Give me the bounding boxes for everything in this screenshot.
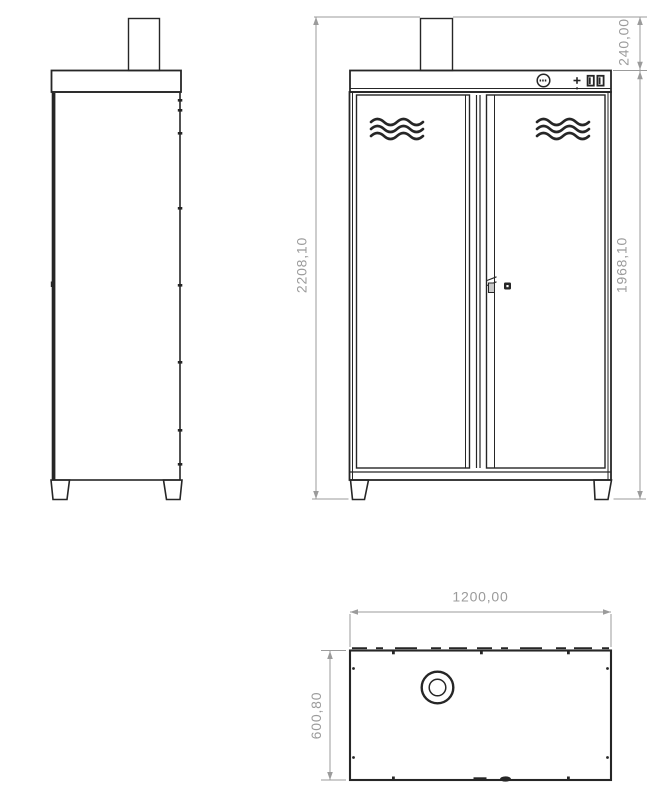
top-outline bbox=[350, 651, 611, 781]
corner-dot bbox=[352, 667, 355, 670]
tick-mark bbox=[567, 652, 570, 655]
hinge-tick bbox=[178, 463, 183, 466]
lock-icon bbox=[504, 283, 511, 290]
technical-drawing: 2208,10 1968,10 240,00 1200,00 600,80 bbox=[0, 0, 655, 800]
front-leg-right bbox=[594, 480, 612, 500]
front-leg-left bbox=[351, 480, 369, 500]
arrow-down bbox=[637, 491, 643, 499]
flue-outlet-inner bbox=[429, 679, 446, 696]
bottom-connector-mark bbox=[500, 776, 511, 781]
arrow-up bbox=[637, 17, 643, 25]
corner-dot bbox=[606, 667, 609, 670]
cad-drawing-sheet: 2208,10 1968,10 240,00 1200,00 600,80 bbox=[0, 0, 655, 800]
arrow-up bbox=[327, 651, 333, 659]
hinge-tick bbox=[178, 429, 183, 432]
arrow-left bbox=[350, 609, 358, 615]
tick-mark bbox=[392, 777, 395, 780]
arrow-down bbox=[327, 772, 333, 780]
vent-valve-icon bbox=[574, 77, 581, 89]
tick-mark bbox=[392, 652, 395, 655]
dimension-label-depth: 600,80 bbox=[308, 692, 324, 740]
tick-mark bbox=[567, 777, 570, 780]
side-leg-right bbox=[164, 480, 183, 500]
hinge-tick bbox=[178, 99, 183, 102]
hinge-tick bbox=[178, 132, 183, 135]
dimension-label-total-height: 2208,10 bbox=[294, 237, 310, 293]
hinge-tick bbox=[178, 284, 183, 287]
right-door-vent-icon bbox=[537, 119, 589, 139]
indicator-dot bbox=[576, 87, 578, 89]
dimension-label-width: 1200,00 bbox=[452, 589, 508, 605]
hinge-tick bbox=[178, 109, 183, 112]
side-leg-left bbox=[51, 480, 70, 500]
edge-tick-marks bbox=[352, 652, 609, 780]
side-latch-mark bbox=[51, 282, 54, 288]
side-view bbox=[51, 19, 183, 500]
side-body bbox=[53, 92, 181, 480]
front-view bbox=[350, 19, 612, 500]
corner-dot bbox=[352, 756, 355, 759]
dimension-label-chimney-height: 240,00 bbox=[616, 18, 632, 66]
switch-mark bbox=[589, 77, 591, 84]
side-chimney bbox=[129, 19, 160, 71]
arrow-right bbox=[603, 609, 611, 615]
side-top-cap bbox=[52, 71, 182, 93]
dimension-annotations: 2208,10 1968,10 240,00 1200,00 600,80 bbox=[294, 17, 648, 780]
corner-dot bbox=[606, 756, 609, 759]
arrow-up bbox=[637, 71, 643, 79]
left-door bbox=[357, 95, 470, 468]
bottom-connector-mark bbox=[474, 777, 487, 781]
switch-mark bbox=[599, 77, 601, 84]
arrow-down bbox=[313, 491, 319, 499]
dimension-label-body-height: 1968,10 bbox=[614, 237, 630, 293]
left-door-vent-icon bbox=[371, 119, 423, 139]
control-panel bbox=[537, 74, 603, 89]
arrow-up bbox=[313, 17, 319, 25]
front-chimney bbox=[421, 19, 453, 71]
tick-mark bbox=[480, 652, 483, 655]
arrow-down bbox=[637, 62, 643, 70]
door-handle bbox=[487, 277, 497, 293]
flue-outlet-outer bbox=[422, 672, 454, 704]
hinge-tick bbox=[178, 207, 183, 210]
top-view bbox=[350, 648, 611, 781]
right-door bbox=[487, 95, 606, 468]
hinge-tick bbox=[178, 361, 183, 364]
